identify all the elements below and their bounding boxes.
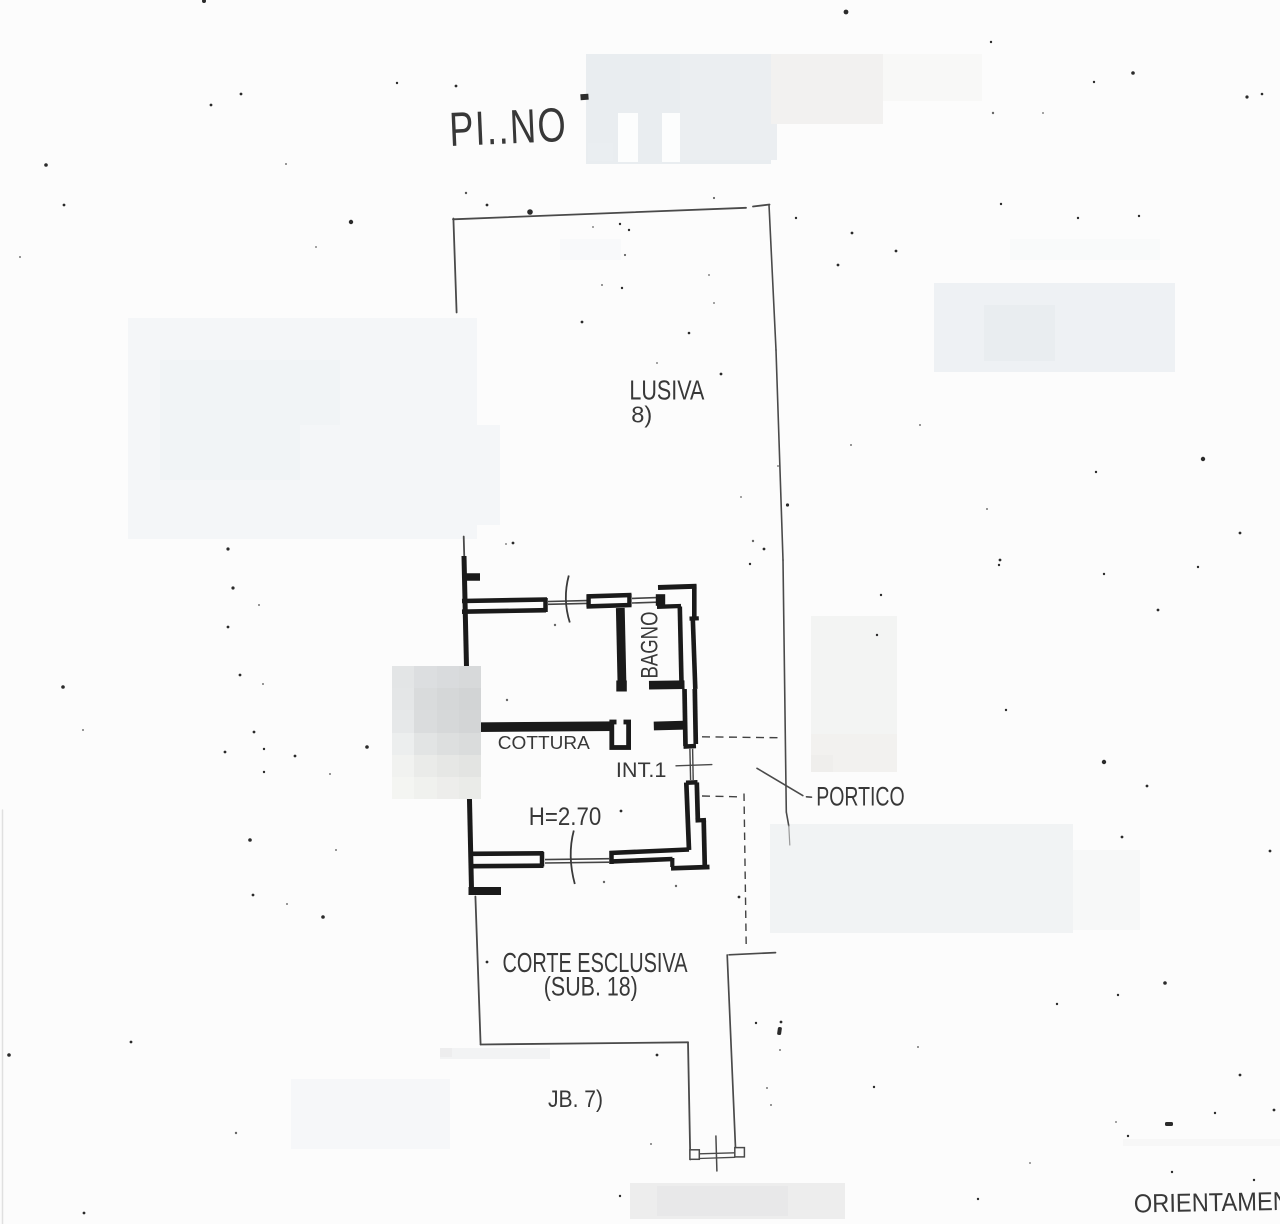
svg-text:8): 8) xyxy=(631,402,652,428)
svg-text:INT.1: INT.1 xyxy=(616,758,667,782)
svg-text:BAGNO: BAGNO xyxy=(637,612,664,679)
svg-text:PI..NO: PI..NO xyxy=(448,99,568,157)
svg-text:ORIENTAMEN: ORIENTAMEN xyxy=(1134,1186,1280,1219)
svg-text:COTTURA: COTTURA xyxy=(498,732,591,753)
svg-text:JB. 7): JB. 7) xyxy=(548,1086,603,1113)
svg-text:(SUB. 18): (SUB. 18) xyxy=(544,972,638,1002)
svg-text:PORTICO: PORTICO xyxy=(816,782,905,812)
svg-text:H=2.70: H=2.70 xyxy=(529,803,602,831)
